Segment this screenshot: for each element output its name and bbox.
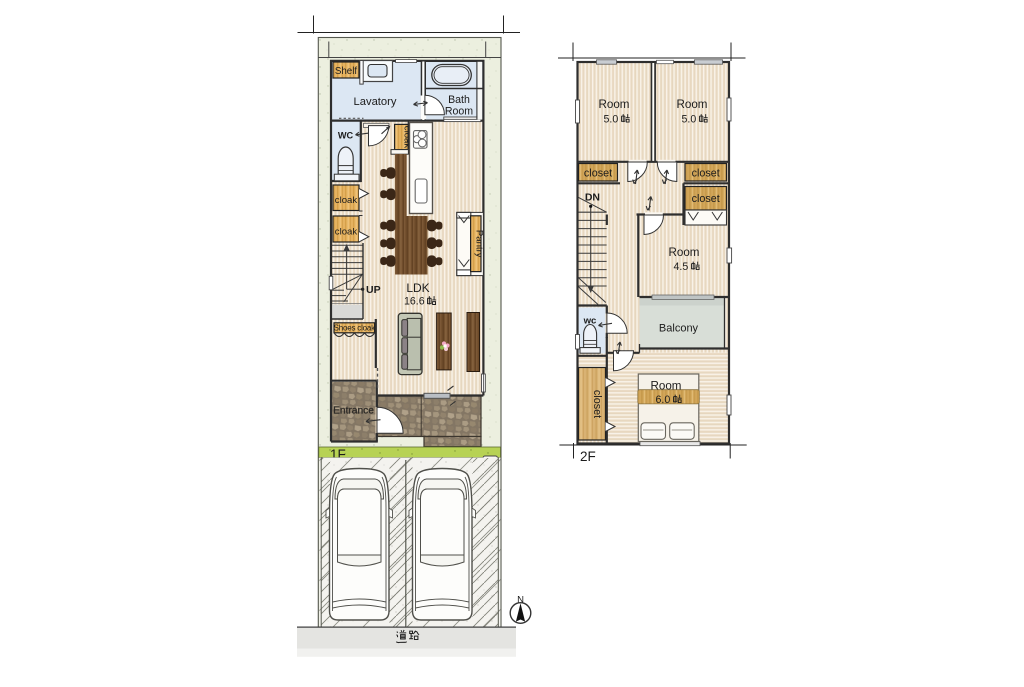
svg-text:closet: closet xyxy=(692,168,720,180)
svg-text:4.5: 4.5 xyxy=(674,261,689,273)
svg-text:cloak: cloak xyxy=(335,227,358,238)
svg-text:Pantry: Pantry xyxy=(474,230,485,258)
svg-text:5.0: 5.0 xyxy=(604,114,619,126)
svg-text:Lavatory: Lavatory xyxy=(354,96,397,108)
svg-text:DN: DN xyxy=(585,192,600,204)
svg-text:Room: Room xyxy=(599,98,630,111)
svg-text:16.6: 16.6 xyxy=(404,296,425,308)
svg-text:Entrance: Entrance xyxy=(333,406,374,417)
svg-text:6.0: 6.0 xyxy=(656,394,671,406)
svg-text:closet: closet xyxy=(692,193,720,205)
svg-text:Bath: Bath xyxy=(448,94,470,106)
svg-text:N: N xyxy=(517,595,524,606)
svg-text:Shelf: Shelf xyxy=(335,66,358,77)
svg-text:Room: Room xyxy=(677,98,708,111)
svg-text:cloak: cloak xyxy=(335,195,358,206)
svg-text:WC: WC xyxy=(338,131,354,141)
svg-text:Balcony: Balcony xyxy=(659,323,699,335)
svg-text:closet: closet xyxy=(584,168,612,180)
svg-text:Room: Room xyxy=(445,106,473,118)
svg-text:2F: 2F xyxy=(580,449,596,464)
svg-text:Room: Room xyxy=(651,380,682,393)
svg-text:Shoes cloak: Shoes cloak xyxy=(334,324,377,333)
svg-text:Room: Room xyxy=(669,246,700,259)
svg-text:5.0: 5.0 xyxy=(682,114,697,126)
svg-text:closet: closet xyxy=(591,390,603,418)
svg-text:LDK: LDK xyxy=(406,281,429,295)
svg-text:UP: UP xyxy=(366,284,381,296)
